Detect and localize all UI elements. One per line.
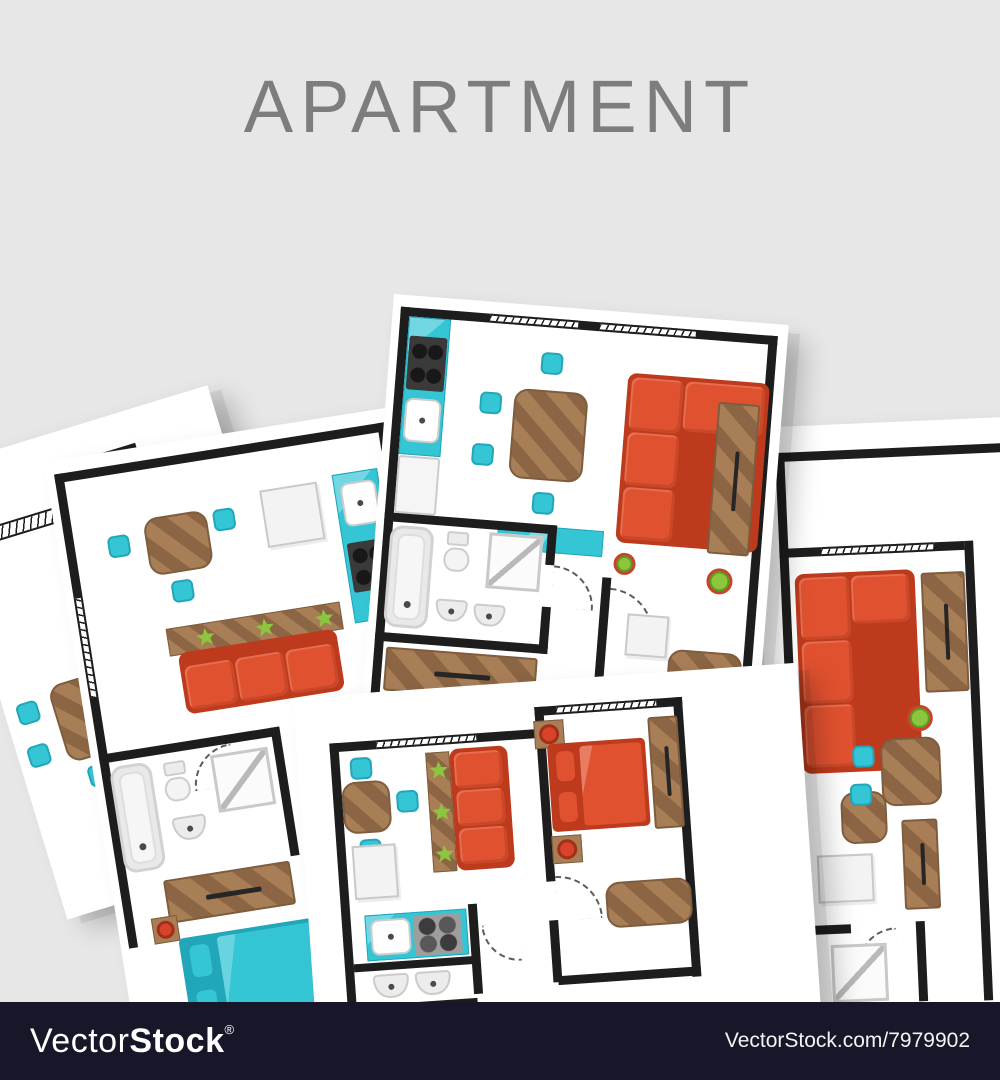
bathroom-sink-icon <box>171 813 208 842</box>
logo-light-text: Vector <box>30 1022 129 1060</box>
chair-icon <box>531 492 555 516</box>
window-icon <box>556 699 656 715</box>
bathroom-sink-icon <box>373 973 411 999</box>
watermark-bar: VectorStock® VectorStock.com/7979902 <box>0 1002 1000 1080</box>
dining-table-icon <box>880 736 943 807</box>
side-table-icon <box>351 843 399 900</box>
image-credit: VectorStock.com/7979902 <box>725 1029 970 1053</box>
window-icon <box>376 733 476 749</box>
sofa-cushion <box>620 487 676 543</box>
wall <box>545 525 557 566</box>
fridge-icon <box>394 455 440 516</box>
wall <box>964 541 993 1001</box>
pillow <box>555 788 581 826</box>
sofa-cushion <box>804 704 857 768</box>
sofa-cushion <box>459 825 509 864</box>
sofa-cushion <box>284 643 339 694</box>
window-icon <box>600 322 696 339</box>
double-bed-icon <box>547 738 651 833</box>
dining-table-icon <box>341 780 393 835</box>
side-table-icon <box>624 613 669 658</box>
wall <box>558 966 701 985</box>
sofa-cushion <box>801 640 854 704</box>
sofa-cushion <box>624 432 680 489</box>
sofa-cushion <box>628 377 684 434</box>
stove-icon <box>406 335 448 392</box>
wall <box>775 440 1000 462</box>
chair-icon <box>396 790 419 813</box>
sofa-icon <box>449 745 515 871</box>
sideboard-icon <box>901 818 941 909</box>
door-arc-icon <box>481 923 522 964</box>
sofa-cushion <box>453 750 503 789</box>
plant-icon <box>429 760 449 780</box>
shower-icon <box>485 532 543 592</box>
wall <box>270 726 299 856</box>
bed-blanket <box>579 742 646 826</box>
wardrobe-icon <box>920 571 969 693</box>
wall <box>400 307 778 346</box>
door-arc-icon <box>551 565 596 610</box>
chair-icon <box>852 745 875 768</box>
wardrobe-handle <box>206 886 262 900</box>
registered-symbol: ® <box>224 1022 234 1037</box>
pillow <box>552 747 578 785</box>
plant-icon <box>906 704 933 731</box>
wardrobe-handle <box>731 451 740 511</box>
wall <box>468 904 483 994</box>
sofa-cushion <box>799 576 852 640</box>
plant-icon <box>314 608 336 630</box>
plant-icon <box>254 617 276 639</box>
floor-plan-sheet-front <box>293 663 822 1057</box>
wardrobe-handle <box>944 604 950 660</box>
chair-icon <box>349 757 372 780</box>
sofa-cushion <box>456 788 506 827</box>
bathroom-sink-icon <box>435 598 469 622</box>
wardrobe-handle <box>920 843 926 885</box>
toilet-icon <box>442 531 471 573</box>
desk-icon <box>605 877 694 929</box>
wardrobe-handle <box>664 746 671 796</box>
door-arc-icon <box>555 873 603 921</box>
wall <box>549 920 562 982</box>
chair-icon <box>170 578 195 603</box>
wardrobe-handle <box>434 671 490 680</box>
chair-icon <box>540 352 564 376</box>
window-icon <box>490 314 578 330</box>
wardrobe-icon <box>163 861 296 924</box>
toilet-icon <box>161 759 193 803</box>
chair-icon <box>15 699 42 726</box>
plant-icon <box>195 626 217 648</box>
bathroom-sink-icon <box>472 603 506 627</box>
sofa-cushion <box>234 651 289 702</box>
bathroom-sink-icon <box>414 970 452 996</box>
plant-icon <box>613 552 637 576</box>
kitchen-sink-icon <box>402 397 441 444</box>
poster-background: APARTMENT <box>0 0 1000 1080</box>
logo-bold-text: Stock <box>129 1022 224 1060</box>
pillow <box>185 940 217 982</box>
chair-icon <box>850 783 873 806</box>
chair-icon <box>107 534 132 559</box>
bathtub-icon <box>383 524 435 629</box>
shower-icon <box>831 943 889 1003</box>
plant-icon <box>705 567 733 595</box>
window-icon <box>821 542 933 556</box>
dining-table-icon <box>508 388 589 484</box>
stove-icon <box>413 913 464 956</box>
plant-icon <box>432 802 452 822</box>
dining-table-icon <box>142 509 214 576</box>
side-table-icon <box>259 482 325 548</box>
side-table-icon <box>817 853 875 903</box>
shower-icon <box>210 747 276 813</box>
sofa-cushion <box>851 573 911 623</box>
chair-icon <box>26 742 53 769</box>
sofa-cushion <box>184 659 239 710</box>
wall <box>916 921 928 1001</box>
page-title: APARTMENT <box>0 64 1000 149</box>
vectorstock-logo: VectorStock® <box>30 1022 235 1061</box>
plant-icon <box>435 844 455 864</box>
chair-icon <box>479 391 503 415</box>
chair-icon <box>471 443 495 467</box>
kitchen-sink-icon <box>370 917 412 956</box>
chair-icon <box>212 507 237 532</box>
